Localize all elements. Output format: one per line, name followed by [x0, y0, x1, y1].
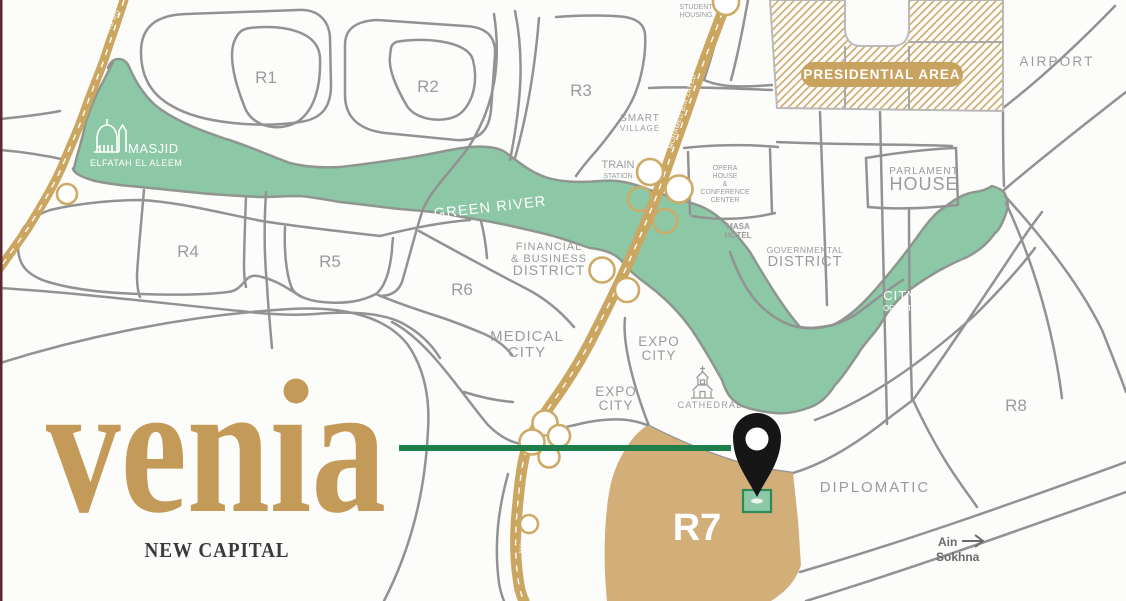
svg-text:DISTRICT: DISTRICT — [768, 254, 843, 270]
svg-text:HOUSE: HOUSE — [889, 174, 958, 194]
svg-text:OF ARTS: OF ARTS — [883, 304, 917, 313]
svg-text:NEW CAPITAL: NEW CAPITAL — [145, 538, 290, 562]
svg-text:MEDICAL: MEDICAL — [490, 328, 564, 345]
svg-text:CITY: CITY — [883, 288, 917, 303]
svg-text:R5: R5 — [319, 252, 341, 271]
svg-text:Sokhna: Sokhna — [936, 550, 980, 564]
svg-text:ELFATAH EL ALEEM: ELFATAH EL ALEEM — [90, 158, 182, 168]
svg-text:HOUSE: HOUSE — [713, 173, 738, 180]
svg-text:HOUSING: HOUSING — [680, 12, 713, 19]
svg-text:&: & — [723, 181, 728, 188]
svg-text:CITY: CITY — [508, 344, 546, 361]
svg-text:HOTEL: HOTEL — [724, 231, 751, 240]
svg-text:VILLAGE: VILLAGE — [620, 124, 660, 133]
svg-text:MASA: MASA — [726, 222, 750, 231]
svg-text:CONFERENCE: CONFERENCE — [700, 189, 749, 196]
svg-text:R3: R3 — [570, 81, 592, 100]
svg-text:DISTRICT: DISTRICT — [513, 262, 586, 278]
svg-text:R6: R6 — [451, 280, 473, 299]
svg-text:venıa: venıa — [46, 343, 386, 552]
svg-text:R4: R4 — [177, 242, 199, 261]
svg-text:PRESIDENTIAL AREA: PRESIDENTIAL AREA — [803, 67, 960, 82]
svg-text:STATION: STATION — [603, 173, 632, 180]
svg-text:EXPO: EXPO — [638, 334, 680, 349]
svg-text:R8: R8 — [1005, 396, 1027, 415]
svg-text:OPERA: OPERA — [713, 165, 738, 172]
svg-text:DIPLOMATIC: DIPLOMATIC — [820, 479, 931, 496]
svg-text:CITY: CITY — [599, 398, 634, 413]
svg-text:TRAIN: TRAIN — [602, 159, 635, 171]
svg-text:CITY: CITY — [642, 348, 677, 363]
svg-text:STUDENT: STUDENT — [679, 4, 713, 11]
svg-text:R1: R1 — [255, 68, 277, 87]
svg-text:AIRPORT: AIRPORT — [1019, 54, 1094, 69]
svg-text:SMART: SMART — [620, 113, 660, 124]
svg-text:CENTER: CENTER — [711, 197, 740, 204]
svg-text:CATHEDRAL: CATHEDRAL — [678, 400, 743, 410]
svg-text:R2: R2 — [417, 77, 439, 96]
svg-text:MASJID: MASJID — [128, 141, 179, 156]
svg-text:EXPO: EXPO — [595, 384, 637, 399]
svg-text:FINANCIAL: FINANCIAL — [516, 241, 582, 253]
svg-text:Ain: Ain — [938, 535, 957, 549]
svg-text:R7: R7 — [673, 507, 722, 549]
